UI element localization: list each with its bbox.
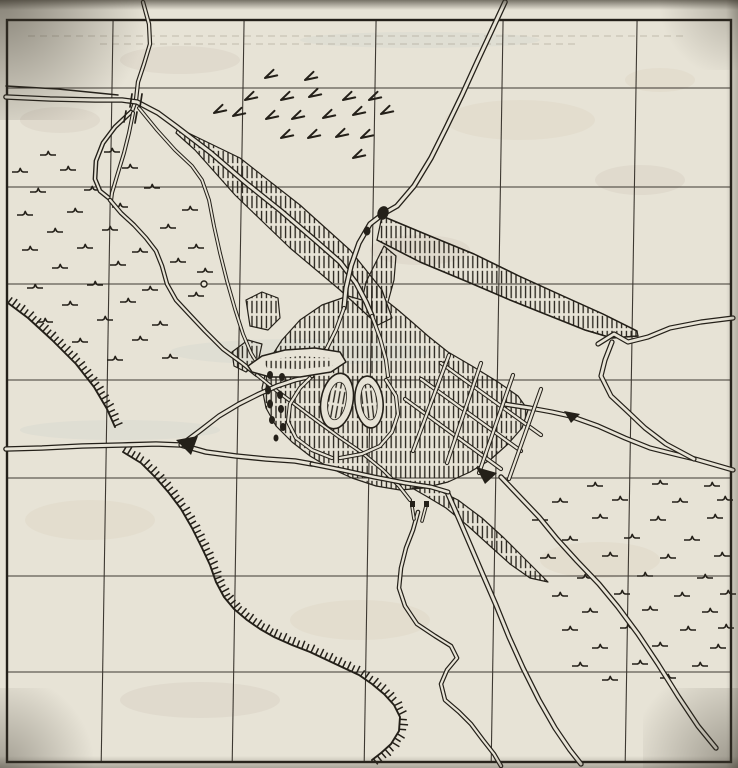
building-block <box>267 371 273 379</box>
building-block <box>279 373 285 381</box>
building-block <box>265 386 271 395</box>
building-block <box>269 416 275 424</box>
building-block <box>277 391 283 399</box>
building-block <box>278 405 284 413</box>
building-block <box>274 435 279 442</box>
sluice-dam <box>424 501 429 507</box>
sketch-map <box>0 0 738 768</box>
building-block <box>280 423 286 431</box>
building-block <box>364 227 371 236</box>
building-block <box>267 400 273 409</box>
spring-circle <box>201 281 207 287</box>
sluice-dam <box>410 501 415 507</box>
scanned-map-page <box>0 0 738 768</box>
